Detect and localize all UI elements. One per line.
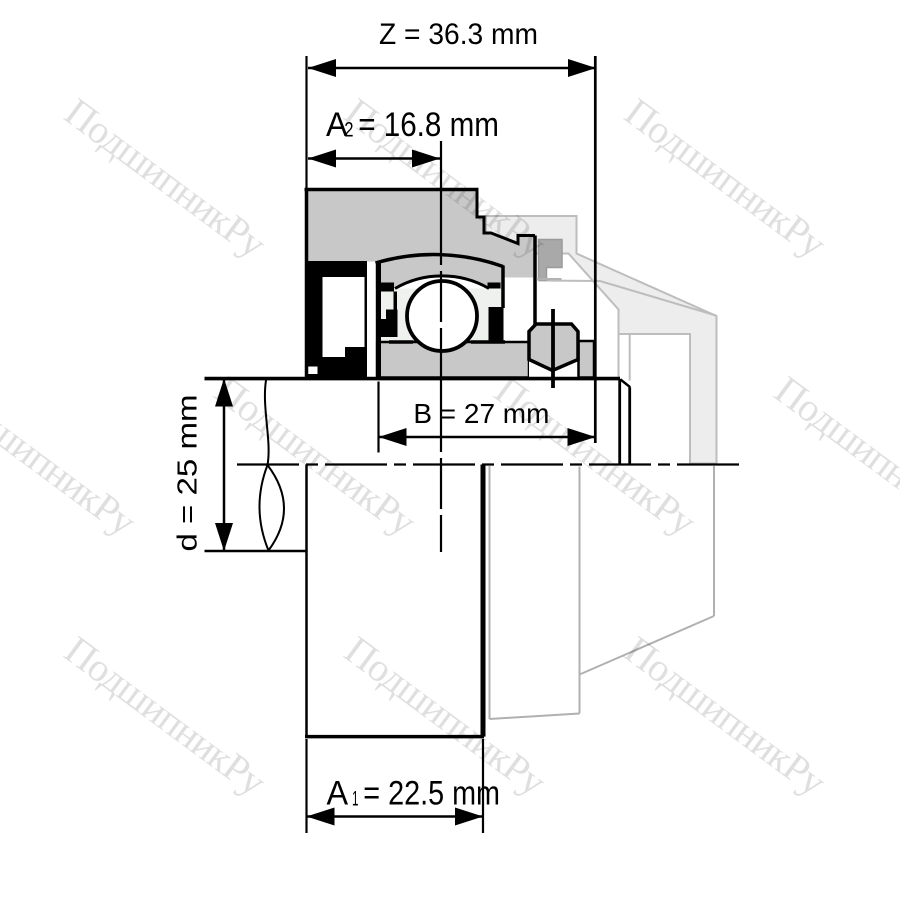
svg-text:Z = 36.3 mm: Z = 36.3 mm: [379, 18, 538, 51]
svg-text:d = 25 mm: d = 25 mm: [172, 395, 203, 552]
svg-text:A: A: [327, 775, 349, 813]
svg-text:1: 1: [352, 787, 359, 811]
svg-text:= 22.5 mm: = 22.5 mm: [363, 775, 500, 813]
